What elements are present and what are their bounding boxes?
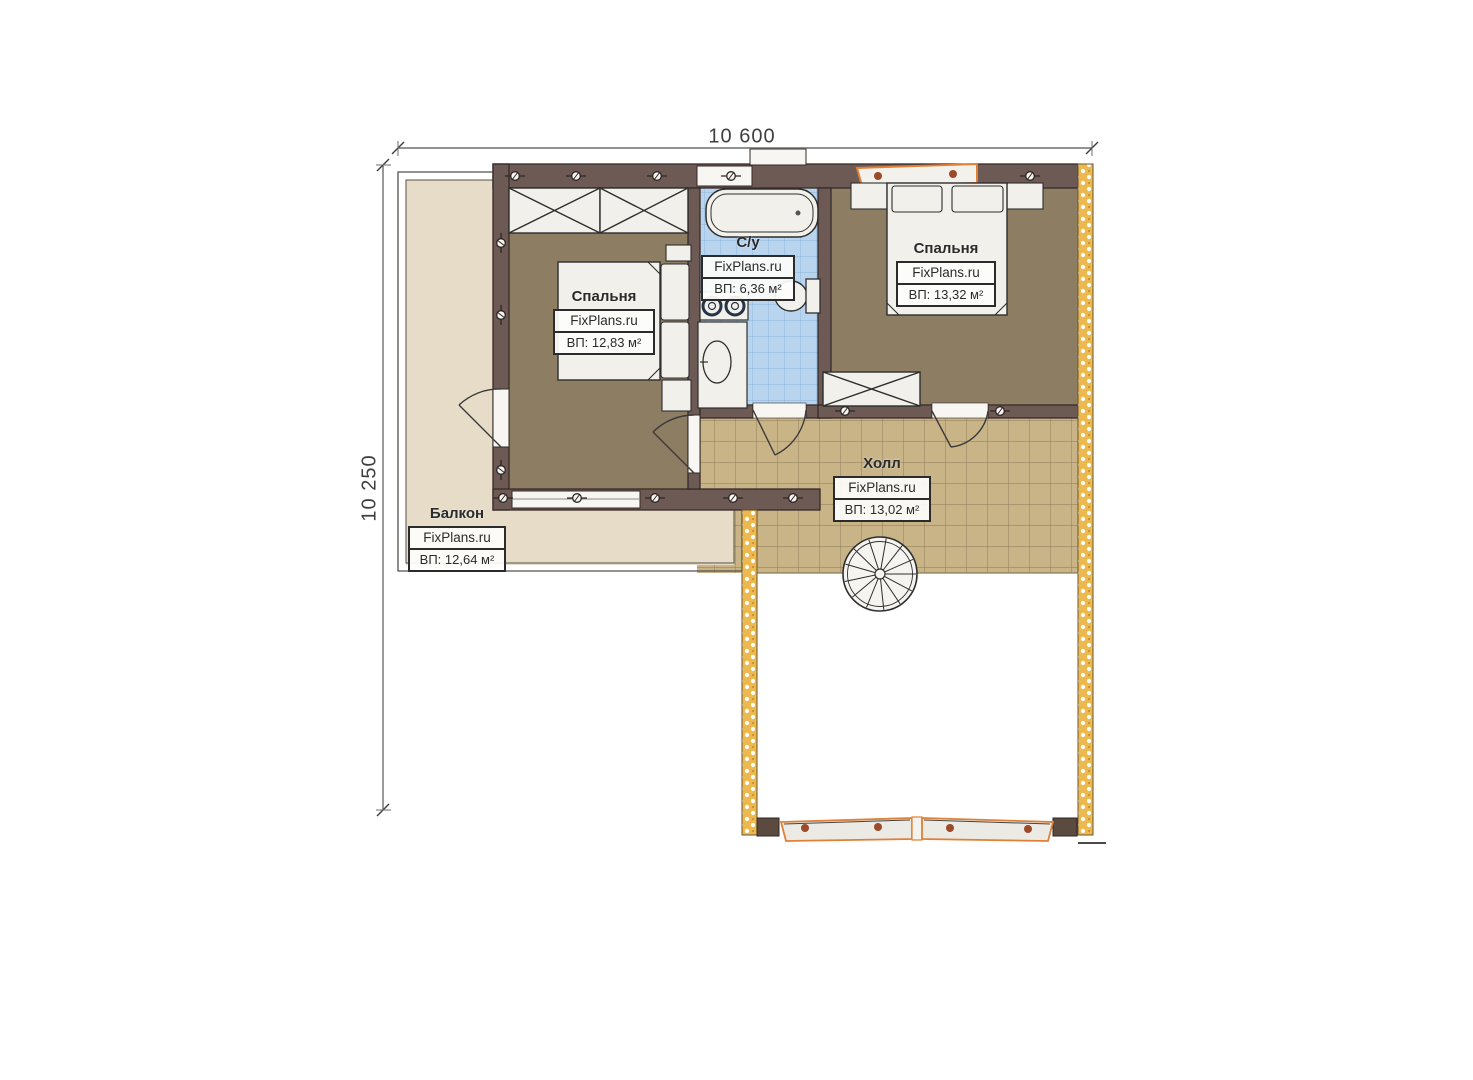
floor-plan-canvas: 10 600 10 250 Спальня FixPlans.ru ВП: 12… xyxy=(0,0,1473,1080)
hall-brand: FixPlans.ru xyxy=(835,478,929,500)
bathtub xyxy=(706,189,818,237)
room-label-hall: Холл FixPlans.ru ВП: 13,02 м² xyxy=(822,455,942,522)
bedroom-left-brand: FixPlans.ru xyxy=(555,311,653,333)
bedroom-right-info-box: FixPlans.ru ВП: 13,32 м² xyxy=(896,261,996,307)
hall-area: ВП: 13,02 м² xyxy=(835,500,929,520)
dimension-height-label: 10 250 xyxy=(359,454,382,521)
bedroom-right-brand: FixPlans.ru xyxy=(898,263,994,285)
hall-info-box: FixPlans.ru ВП: 13,02 м² xyxy=(833,476,931,522)
washbasin-unit xyxy=(698,322,747,408)
floor-plan-drawing xyxy=(0,0,1473,1080)
balcony-info-box: FixPlans.ru ВП: 12,64 м² xyxy=(408,526,506,572)
room-label-bathroom: С/у FixPlans.ru ВП: 6,36 м² xyxy=(694,234,802,301)
bedroom-left-name: Спальня xyxy=(540,288,668,305)
room-label-balcony: Балкон FixPlans.ru ВП: 12,64 м² xyxy=(400,505,514,572)
bedroom-right-area: ВП: 13,32 м² xyxy=(898,285,994,305)
spiral-staircase xyxy=(843,537,917,611)
dimension-width-label: 10 600 xyxy=(708,126,775,149)
bathroom-area: ВП: 6,36 м² xyxy=(703,279,793,299)
bedroom-right-name: Спальня xyxy=(884,240,1008,257)
bathroom-name: С/у xyxy=(694,234,802,251)
bedroom-left-info-box: FixPlans.ru ВП: 12,83 м² xyxy=(553,309,655,355)
balcony-brand: FixPlans.ru xyxy=(410,528,504,550)
room-label-bedroom-left: Спальня FixPlans.ru ВП: 12,83 м² xyxy=(540,288,668,355)
hall-name: Холл xyxy=(822,455,942,472)
bedroom-left-area: ВП: 12,83 м² xyxy=(555,333,653,353)
balcony-name: Балкон xyxy=(400,505,514,522)
bathroom-brand: FixPlans.ru xyxy=(703,257,793,279)
bathroom-info-box: FixPlans.ru ВП: 6,36 м² xyxy=(701,255,795,301)
bottom-windows xyxy=(757,817,1077,841)
room-label-bedroom-right: Спальня FixPlans.ru ВП: 13,32 м² xyxy=(884,240,1008,307)
balcony-area: ВП: 12,64 м² xyxy=(410,550,504,570)
